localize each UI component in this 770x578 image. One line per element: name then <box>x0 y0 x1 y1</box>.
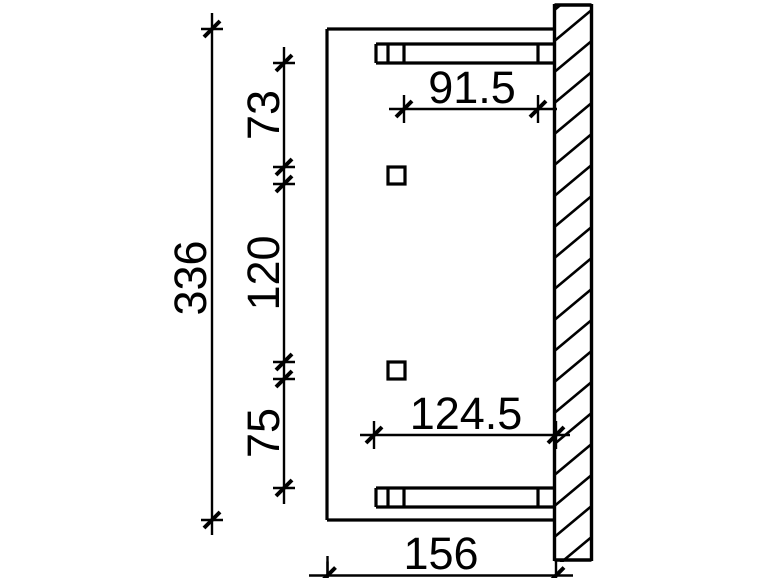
drawing-canvas: 336 73 120 75 91.5 124.5 <box>0 0 770 578</box>
post-upper <box>388 167 405 184</box>
dim-total-height: 336 <box>165 13 223 535</box>
dim-label-336: 336 <box>165 240 216 315</box>
wall-section <box>552 0 594 570</box>
dim-label-124-5: 124.5 <box>410 388 523 439</box>
bottom-rafter <box>376 488 555 507</box>
dim-label-75: 75 <box>238 408 289 458</box>
technical-drawing: 336 73 120 75 91.5 124.5 <box>0 0 770 578</box>
dim-depth: 156 <box>309 528 573 578</box>
top-rafter <box>376 44 555 63</box>
dim-label-120: 120 <box>238 235 289 310</box>
dim-label-73: 73 <box>238 90 289 140</box>
dim-lower-span: 124.5 <box>360 388 570 449</box>
dim-upper-span: 91.5 <box>389 62 557 123</box>
wall-hatch-lines <box>552 0 594 570</box>
dim-label-91-5: 91.5 <box>428 62 516 113</box>
post-lower <box>388 362 405 379</box>
dim-label-156: 156 <box>403 528 478 578</box>
dim-chain-73-120-75: 73 120 75 <box>238 47 295 504</box>
